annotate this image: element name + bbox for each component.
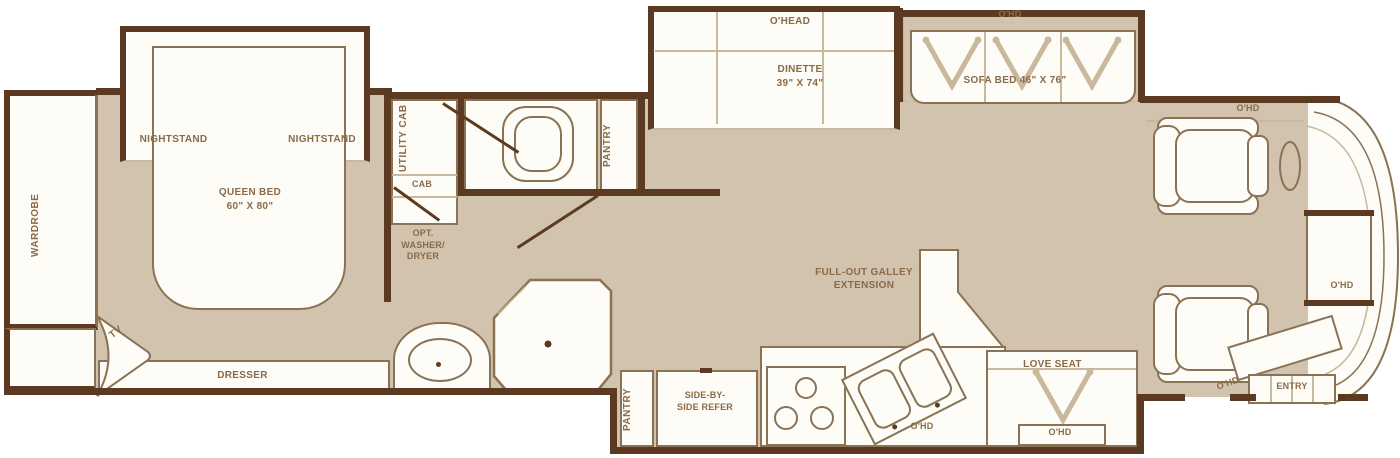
cab-overhead-dash-label: O'HD — [1312, 280, 1372, 292]
stove-burner-right — [810, 406, 834, 430]
rv-floorplan: WARDROBE NIGHTSTAND NIGHTSTAND QUEEN BED… — [0, 0, 1400, 458]
wall-pantry-right — [638, 95, 645, 195]
cab-label: CAB — [396, 179, 448, 191]
bath-sink — [408, 338, 472, 382]
utility-divider-line-2 — [392, 196, 457, 198]
wardrobe-label: WARDROBE — [30, 135, 64, 315]
bath-sink-drain — [436, 362, 441, 367]
tv-corner-cabinet — [4, 328, 96, 392]
wall-step-right — [1137, 398, 1144, 454]
wall-bottom-left — [4, 388, 616, 395]
wall-top-cab — [1140, 96, 1340, 103]
love-seat-overhead-label: O'HD — [1025, 427, 1095, 439]
wall-cab-bottom-1 — [1137, 394, 1185, 401]
wall-bedroom-divider — [384, 92, 391, 302]
cab-overhead-top-label: O'HD — [1198, 103, 1298, 115]
dinette-size-label: 39" X 74" — [720, 77, 880, 90]
refrigerator-handle — [700, 368, 712, 373]
dash-cabinet-wall-top — [1304, 210, 1374, 216]
pantry-top-label: PANTRY — [602, 106, 628, 186]
queen-bed — [152, 46, 346, 310]
driver-seat — [1152, 116, 1312, 216]
wall-cab-bottom-2 — [1230, 394, 1256, 401]
entry-label: ENTRY — [1250, 381, 1334, 393]
washer-dryer-label: OPT. WASHER/ DRYER — [392, 228, 454, 263]
wall-step-left — [610, 388, 617, 454]
dinette-line-v1 — [716, 12, 718, 124]
wall-toilet-utility-divider — [458, 95, 464, 195]
stove-burner-top — [795, 377, 817, 399]
wall-bath-half — [458, 189, 720, 196]
wall-cab-bottom-3 — [1338, 394, 1368, 401]
refrigerator-label: SIDE-BY-SIDE REFER — [677, 390, 733, 413]
love-seat-label: LOVE SEAT — [995, 358, 1110, 371]
pantry-bottom-label: PANTRY — [622, 376, 648, 444]
shower — [490, 276, 616, 394]
sofa-overhead-label: O'HD — [975, 9, 1045, 21]
dash-overhead-cabinet — [1306, 214, 1372, 306]
dinette-overhead-label: O'HEAD — [710, 15, 870, 28]
dash-cabinet-wall-bottom — [1304, 300, 1374, 306]
wall-top-left-1 — [96, 88, 124, 95]
queen-bed-size-label: 60" X 80" — [190, 200, 310, 213]
wall-sofa-slide-right — [1138, 10, 1145, 102]
toilet-seat — [514, 116, 562, 172]
sofa-bed-label: SOFA BED 46" X 76" — [930, 74, 1100, 87]
utility-cab-label: UTILITY CAB — [398, 102, 426, 174]
queen-bed-label: QUEEN BED — [190, 186, 310, 199]
nightstand-left-label: NIGHTSTAND — [117, 133, 230, 146]
kitchen-overhead-label: O'HD — [892, 421, 952, 433]
utility-divider-line-1 — [392, 174, 457, 176]
nightstand-right-label: NIGHTSTAND — [267, 133, 377, 146]
dresser-label: DRESSER — [185, 369, 300, 382]
dinette-line-h — [655, 50, 894, 52]
wall-top-bath — [388, 92, 652, 99]
sofa-fold-marks — [910, 30, 1136, 104]
wall-slide-divider — [896, 8, 903, 102]
galley-extension-label: FULL-OUT GALLEY EXTENSION — [810, 266, 918, 292]
stove-burner-left — [774, 406, 798, 430]
dinette-label: DINETTE — [720, 63, 880, 76]
kitchen-sink-faucet-dot-2 — [934, 402, 941, 409]
wall-bottom-kitchen — [610, 447, 1144, 454]
